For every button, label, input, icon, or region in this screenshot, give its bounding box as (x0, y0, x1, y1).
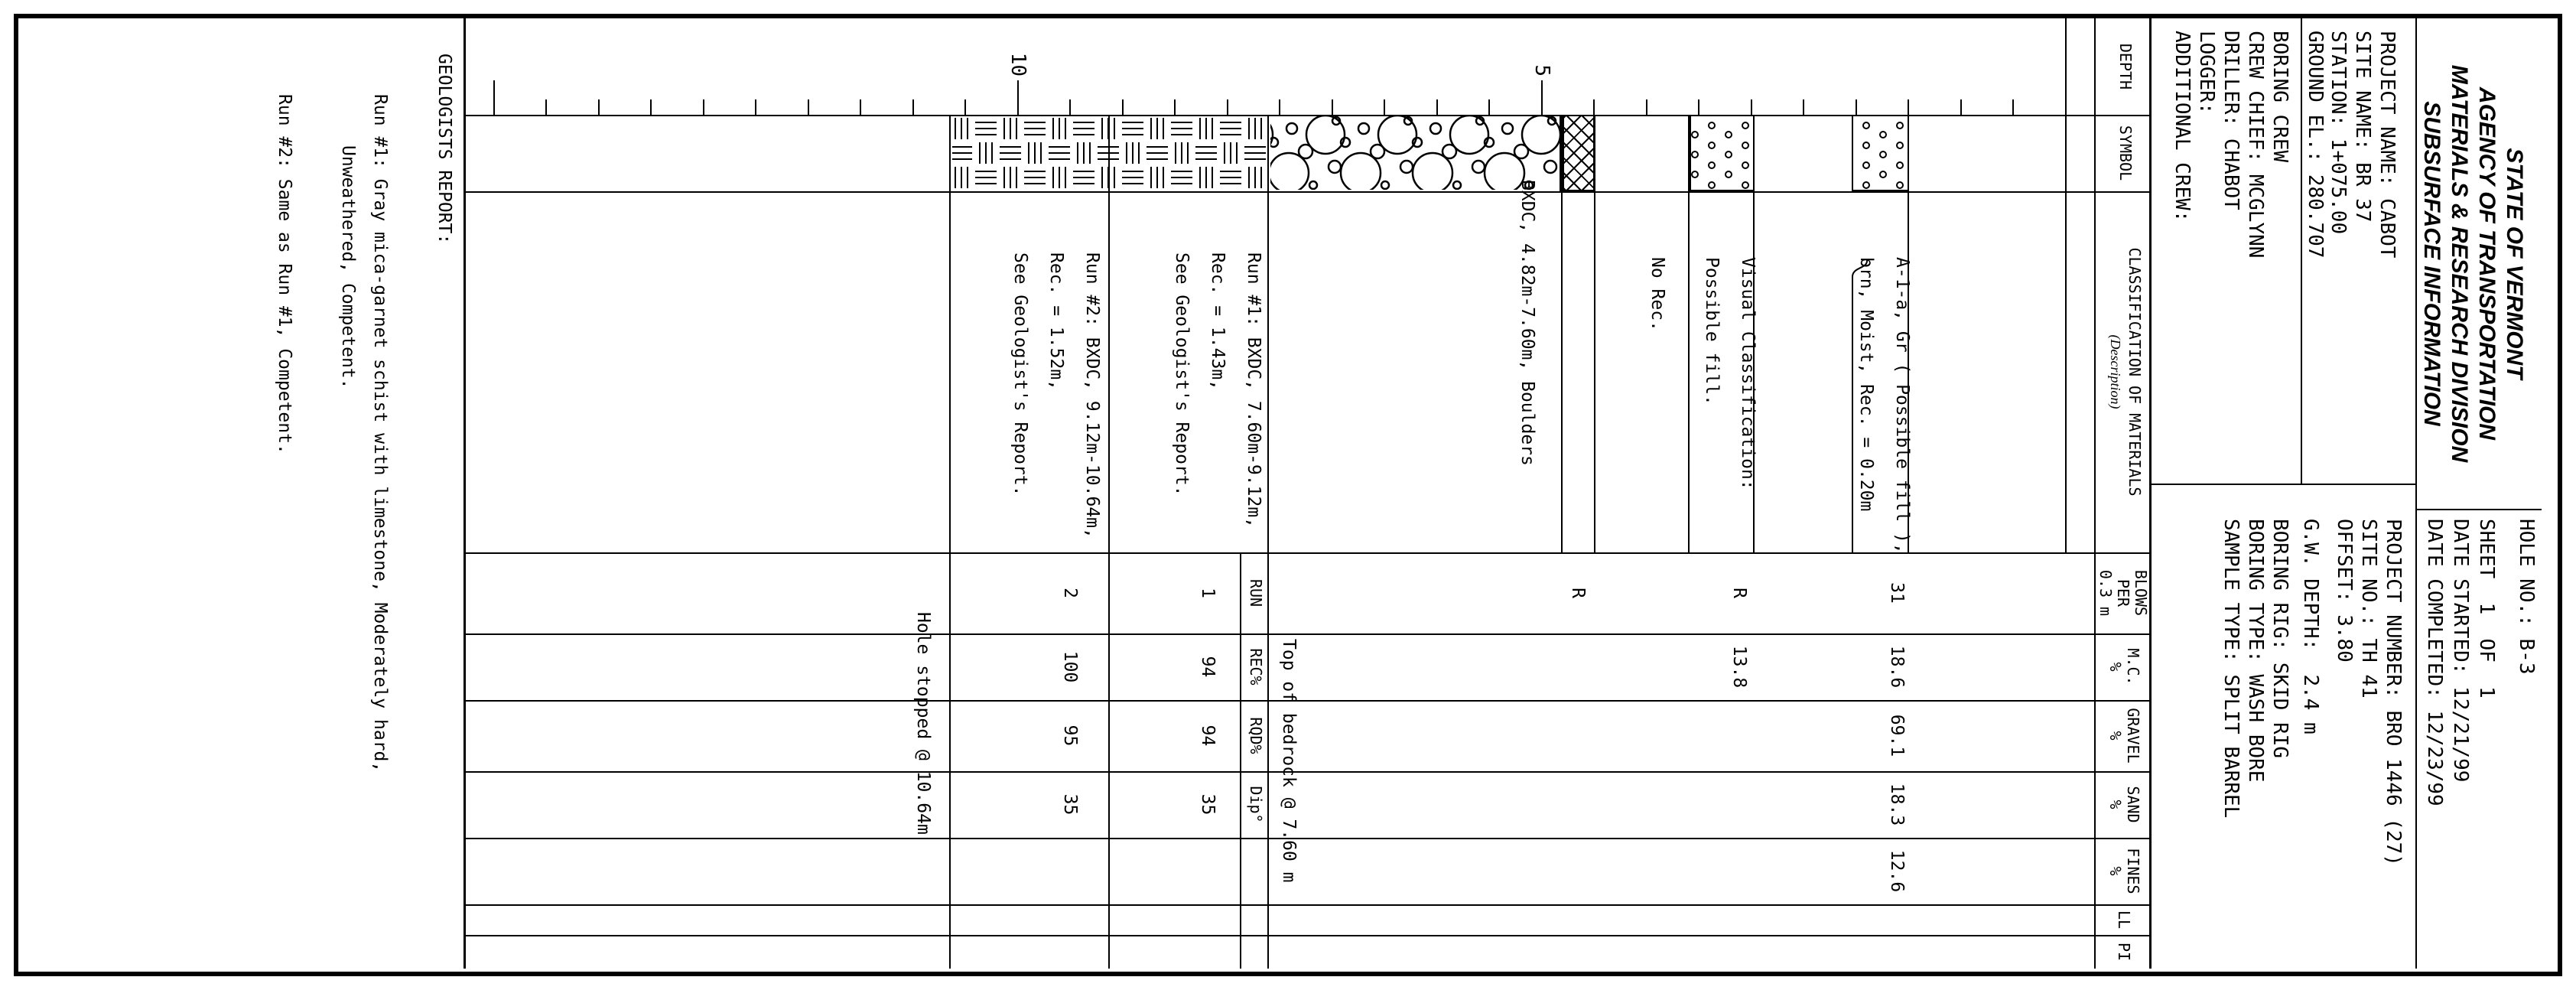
rock-core-symbol (952, 116, 1267, 190)
date-started: DATE STARTED: 12/21/99 (2449, 519, 2472, 782)
sample-symbol-2 (1690, 115, 1755, 191)
agency-title-line1: STATE OF VERMONT (2501, 18, 2527, 509)
rule-line (2152, 484, 2417, 485)
depth-tick (1122, 99, 1124, 115)
project-name: PROJECT NAME: CABOT (2376, 31, 2399, 258)
ground-el: GROUND EL.: 280.707 (2304, 31, 2327, 258)
depth-tick (1960, 99, 1962, 115)
hole-bottom-line (949, 115, 951, 969)
run2-desc-line3: See Geologist's Report. (1009, 252, 1032, 497)
site-name: SITE NAME: BR 37 (2351, 31, 2374, 222)
boulder-top-line (1560, 115, 1563, 191)
depth-tick (1541, 80, 1543, 115)
depth-tick (1698, 99, 1699, 115)
depth-tick (1436, 99, 1438, 115)
col-sand: SAND % (2106, 771, 2142, 838)
col-symbol: SYMBOL (2116, 115, 2134, 191)
layer-line (1594, 115, 1595, 552)
report-divider-line (463, 18, 466, 969)
depth-tick (493, 80, 495, 115)
layer-line (1852, 277, 1853, 552)
depth-tick (1488, 99, 1490, 115)
depth-tick (1174, 99, 1176, 115)
depth-tick (1227, 99, 1228, 115)
station: STATION: 1+075.00 (2327, 31, 2350, 234)
run2-rec: 100 (1059, 633, 1081, 700)
depth-tick (1069, 99, 1071, 115)
run2-dip: 35 (1059, 771, 1081, 838)
run1-dip: 35 (1197, 771, 1218, 838)
run1-desc-line3: See Geologist's Report. (1170, 252, 1193, 497)
subcol-run: RUN (1247, 552, 1264, 633)
crew-chief: CREW CHIEF: MCGLYNN (2244, 31, 2267, 258)
report-line3: Run #2: Same as Run #1, Competent. (273, 94, 296, 454)
sheet-no: SHEET 1 OF 1 (2475, 519, 2498, 699)
run1-rqd: 94 (1197, 700, 1218, 771)
boring-crew: BORING CREW (2269, 31, 2291, 162)
run2-run: 2 (1059, 552, 1081, 633)
depth-tick (1279, 99, 1280, 115)
col-pi: PI (2115, 935, 2132, 969)
sample1-mc: 18.6 (1886, 633, 1908, 700)
depth-tick (755, 99, 756, 115)
run1-desc-line2: Rec. = 1.43m, (1206, 252, 1229, 390)
bedrock-note: Top of bedrock @ 7.60 m (1277, 639, 1300, 883)
depth-tick (964, 99, 966, 115)
depth-tick (545, 99, 547, 115)
boring-rig: BORING RIG: SKID RIG (2269, 519, 2291, 758)
boring-log-sheet: STATE OF VERMONT AGENCY OF TRANSPORTATIO… (0, 0, 2576, 990)
depth-tick (1384, 99, 1385, 115)
sample3-blows: R (1567, 552, 1589, 633)
run2-desc-line1: Run #2: BXDC, 9.12m-10.64m, (1081, 252, 1104, 539)
depth-tick (1751, 99, 1752, 115)
depth-tick (1856, 99, 1857, 115)
screenshot-stage: STATE OF VERMONT AGENCY OF TRANSPORTATIO… (0, 0, 2576, 990)
col-mc: M.C. % (2106, 633, 2142, 700)
run-boundary-line (1108, 115, 1110, 969)
agency-title-line3: MATERIALS & RESEARCH DIVISION (2446, 18, 2472, 509)
sample2-blows: R (1729, 552, 1750, 633)
table-headrow-line (2094, 18, 2096, 969)
depth-label-5: 5 (1530, 31, 1553, 77)
sample1-blows: 31 (1886, 552, 1908, 633)
col-line (466, 904, 2152, 906)
agency-title-line2: AGENCY OF TRANSPORTATION (2474, 18, 2500, 509)
hole-stopped-note: Hole stopped @ 10.64m (912, 612, 935, 835)
layer1-desc-line2: brn, Moist, Rec. = 0.20m (1855, 257, 1878, 511)
logger: LOGGER: (2195, 31, 2218, 115)
layer2-desc-line1: Visual Classification: (1736, 257, 1759, 490)
table-top-line (2149, 18, 2152, 969)
rule-line (2415, 18, 2417, 969)
depth-tick (650, 99, 652, 115)
layer3-desc: No Rec. (1646, 257, 1669, 331)
run2-desc-line2: Rec. = 1.52m, (1045, 252, 1068, 390)
gw-depth: G.W. DEPTH: 2.4 m (2299, 519, 2322, 734)
site-no: SITE NO.: TH 41 (2357, 519, 2380, 699)
layer2-desc-line2: Possible fill. (1700, 257, 1723, 405)
bedrock-line (1267, 115, 1269, 969)
sample-type: SAMPLE TYPE: SPLIT BARREL (2220, 519, 2243, 818)
col-ll: LL (2115, 904, 2132, 935)
sample2-mc: 13.8 (1729, 633, 1750, 700)
sample1-sand: 18.3 (1886, 771, 1908, 838)
depth-tick (1646, 99, 1647, 115)
subcol-rec: REC% (1247, 633, 1264, 700)
col-line (466, 935, 2152, 936)
report-line2: Unweathered, Competent. (337, 145, 359, 389)
rule-line (2417, 509, 2542, 510)
boring-type: BORING TYPE: WASH BORE (2244, 519, 2267, 782)
agency-title-line4: SUBSURFACE INFORMATION (2418, 18, 2444, 509)
depth-tick (1803, 99, 1804, 115)
depth-tick (912, 99, 914, 115)
layer-line (1561, 191, 1563, 552)
layer4-desc: BXDC, 4.82m-7.60m, Boulders (1516, 180, 1539, 466)
col-classification: CLASSIFICATION OF MATERIALS (2126, 191, 2143, 552)
depth-tick (860, 99, 861, 115)
project-number: PROJECT NUMBER: BRO 1446 (27) (2382, 519, 2405, 866)
depth-tick (598, 99, 600, 115)
run2-rqd: 95 (1059, 700, 1081, 771)
col-line (466, 191, 2152, 193)
layer-line (1688, 115, 1690, 552)
col-blows: BLOWS PER 0.3 m (2096, 552, 2149, 633)
depth-tick (1332, 99, 1333, 115)
depth-tick (1593, 99, 1595, 115)
boulders-symbol (1270, 116, 1560, 190)
depth-tick (2012, 99, 2014, 115)
no-recovery-symbol (1563, 115, 1595, 191)
report-line1: Run #1: Gray mica-garnet schist with lim… (369, 94, 392, 772)
layer1-desc-line1: A-1-a, Gr ( Possible fill ), (1891, 257, 1914, 554)
depth-label-10: 10 (1007, 31, 1029, 77)
col-fines: FINES % (2106, 838, 2142, 904)
sample1-fines: 12.6 (1886, 838, 1908, 904)
run1-run: 1 (1197, 552, 1218, 633)
run1-desc-line1: Run #1: BXDC, 7.60m-9.12m, (1242, 252, 1265, 528)
core-subheader-line (1240, 552, 1241, 969)
subcol-rqd: RQD% (1247, 700, 1264, 771)
subcol-dip: Dip° (1247, 771, 1264, 838)
ground-surface-line (2065, 18, 2067, 554)
sample1-gravel: 69.1 (1886, 700, 1908, 771)
rule-line (2301, 18, 2302, 485)
hole-no: HOLE NO.: B-3 (2515, 519, 2538, 675)
additional-crew: ADDITIONAL CREW: (2171, 31, 2194, 222)
offset: OFFSET: 3.80 (2333, 519, 2356, 663)
col-depth: DEPTH (2116, 18, 2134, 115)
col-classification-sub: (Description) (2107, 191, 2123, 552)
geologists-report-heading: GEOLOGISTS REPORT: (433, 54, 456, 244)
date-completed: DATE COMPLETED: 12/23/99 (2423, 519, 2446, 806)
col-gravel: GRAVEL % (2106, 700, 2142, 771)
depth-tick (703, 99, 704, 115)
depth-tick (1908, 99, 1909, 115)
sample-symbol-1 (1852, 115, 1909, 191)
depth-tick (1017, 80, 1019, 115)
run1-rec: 94 (1197, 633, 1218, 700)
depth-tick (808, 99, 809, 115)
driller: DRILLER: CHABOT (2220, 31, 2243, 210)
